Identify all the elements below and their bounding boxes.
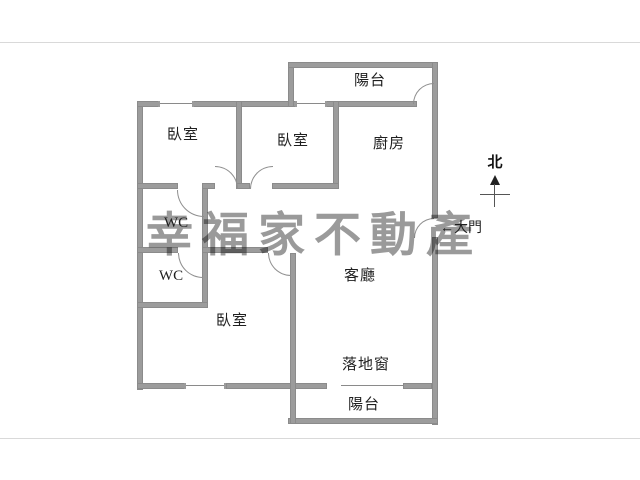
wall-bottom-segment bbox=[403, 383, 432, 389]
room-label-balcony-top: 陽台 bbox=[354, 74, 386, 89]
wall-top-segment bbox=[137, 101, 160, 107]
window-bedroom-3 bbox=[186, 385, 226, 386]
floor-plan: 幸福家不動產 陽台 臥室 臥室 廚房 WC WC 客廳 臥室 陽台 ←大門 落地… bbox=[0, 0, 640, 480]
wall-bedroom-south-segment bbox=[272, 183, 339, 189]
wall-bedroom-divider bbox=[236, 101, 242, 188]
wall-wc2-bottom bbox=[137, 302, 208, 308]
north-label: 北 bbox=[487, 156, 502, 171]
window-jamb bbox=[325, 101, 327, 107]
window-jamb bbox=[192, 101, 194, 107]
wall-balcony-top-left bbox=[288, 62, 294, 107]
wall-bedroom-south-segment bbox=[137, 183, 178, 189]
wall-kitchen-divider bbox=[333, 101, 339, 188]
wall-bottom-segment bbox=[226, 383, 327, 389]
agency-watermark: 幸福家不動產 bbox=[146, 212, 482, 259]
room-label-balcony-bottom: 陽台 bbox=[348, 398, 380, 413]
window-jamb bbox=[224, 383, 226, 389]
room-label-wc-2: WC bbox=[159, 269, 183, 284]
room-label-kitchen: 廚房 bbox=[373, 137, 405, 152]
door-arc-bedroom-2 bbox=[250, 166, 273, 189]
door-arc-balcony bbox=[413, 83, 434, 104]
wall-left bbox=[137, 101, 143, 390]
window-jamb bbox=[158, 101, 160, 107]
window-bedroom-1 bbox=[160, 103, 193, 104]
wall-top-segment bbox=[193, 101, 297, 107]
north-arrow-line bbox=[494, 184, 495, 207]
wall-top-segment bbox=[326, 101, 417, 107]
window-bedroom-2 bbox=[297, 103, 326, 104]
north-cross-line bbox=[480, 194, 510, 195]
window-floor-to-ceiling bbox=[341, 385, 403, 386]
main-door-label: ←大門 bbox=[440, 222, 482, 236]
wall-balcony-top bbox=[288, 62, 438, 68]
room-label-bedroom-3: 臥室 bbox=[216, 314, 248, 329]
window-jamb bbox=[295, 101, 297, 107]
bottom-frame-line bbox=[0, 438, 640, 439]
room-label-living-room: 客廳 bbox=[344, 269, 376, 284]
floor-window-label: 落地窗 bbox=[342, 358, 390, 373]
window-jamb bbox=[184, 383, 186, 389]
top-frame-line bbox=[0, 42, 640, 43]
north-arrow-icon bbox=[490, 175, 500, 185]
wall-bedroom-south-segment bbox=[236, 183, 250, 189]
room-label-bedroom-2: 臥室 bbox=[277, 134, 309, 149]
wall-bedroom3-right bbox=[290, 253, 296, 424]
door-arc-bedroom-1 bbox=[215, 166, 238, 189]
room-label-bedroom-1: 臥室 bbox=[167, 128, 199, 143]
room-label-wc-1: WC bbox=[164, 216, 188, 231]
wall-right-lower bbox=[432, 237, 438, 425]
wall-bottom-segment bbox=[137, 383, 186, 389]
wall-balcony-bottom bbox=[288, 418, 438, 424]
